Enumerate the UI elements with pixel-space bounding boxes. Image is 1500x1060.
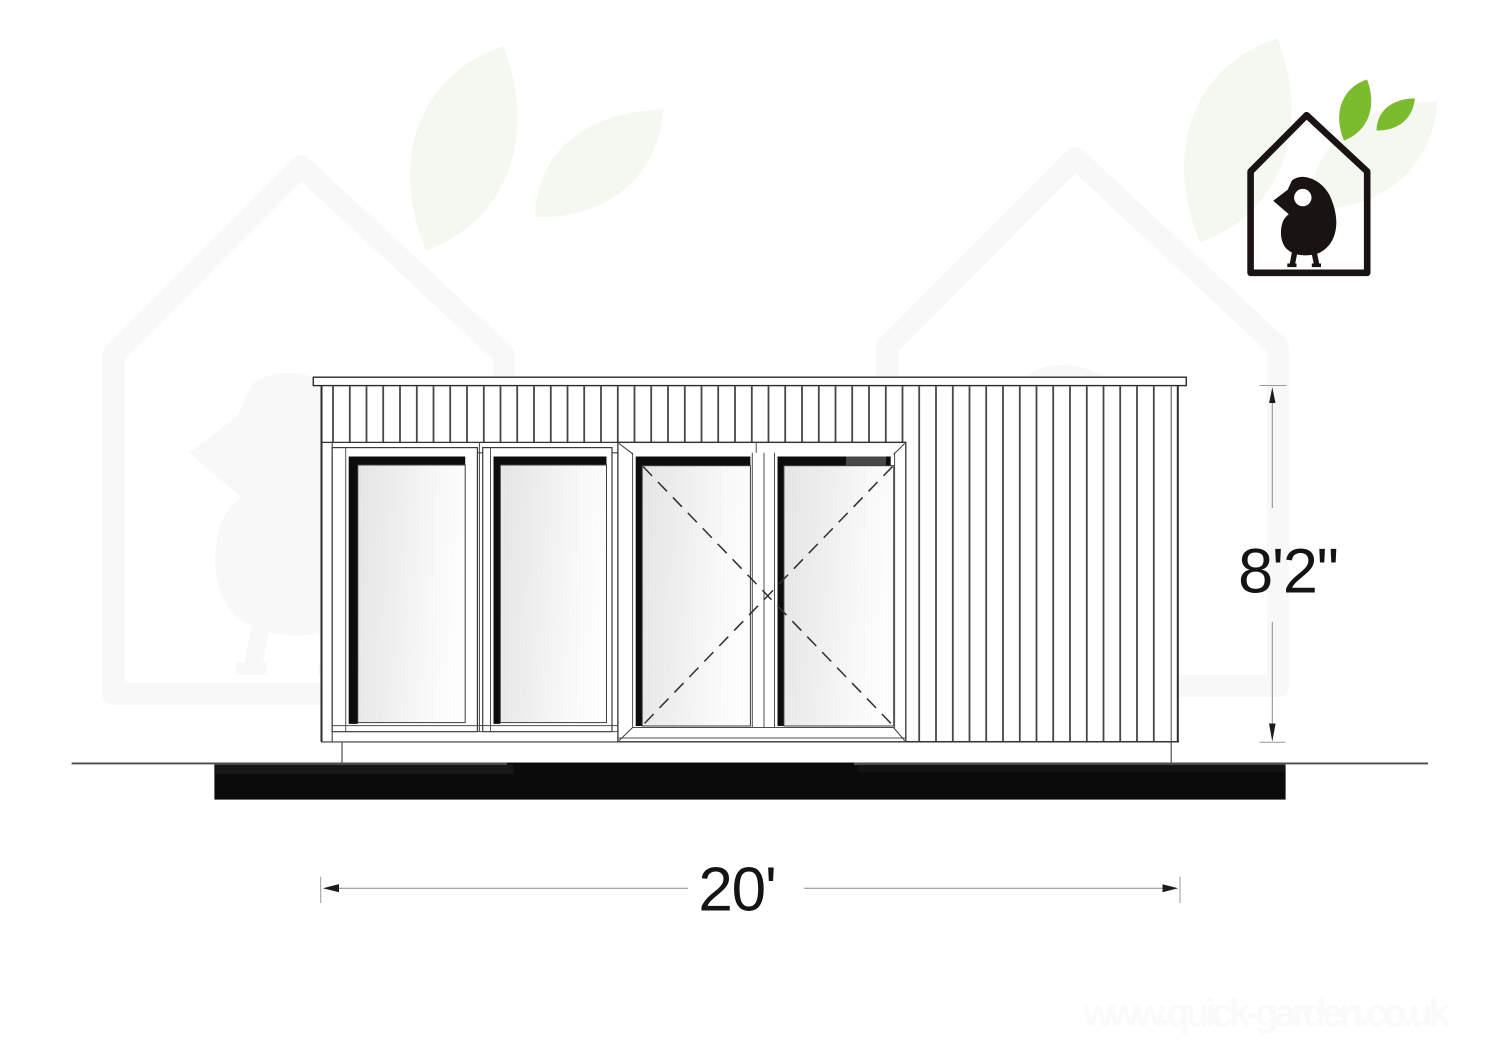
svg-text:8'2": 8'2" — [1238, 537, 1338, 607]
svg-text:20': 20' — [698, 856, 775, 925]
svg-text:www.quick-garden.co.uk: www.quick-garden.co.uk — [1082, 992, 1450, 1035]
